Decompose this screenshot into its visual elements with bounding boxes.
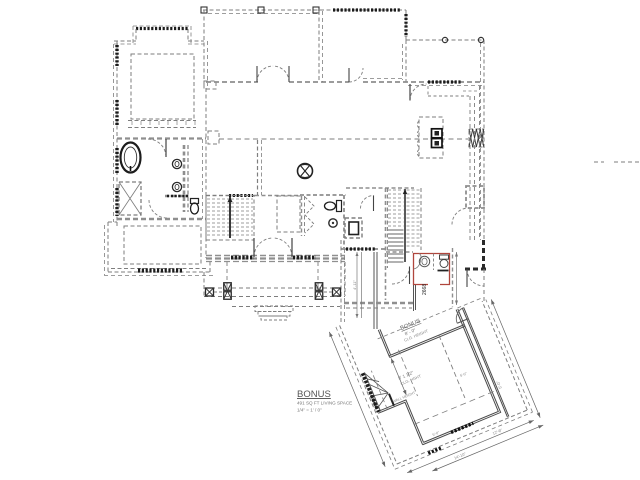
svg-text:BONUS: BONUS xyxy=(297,389,331,400)
svg-text:5'-0": 5'-0" xyxy=(459,371,468,378)
svg-text:4'-11": 4'-11" xyxy=(352,280,357,290)
svg-text:5'-0": 5'-0" xyxy=(495,380,503,390)
svg-text:14'-10": 14'-10" xyxy=(453,451,467,461)
svg-text:491 SQ FT LIVING SPACE: 491 SQ FT LIVING SPACE xyxy=(297,401,352,406)
svg-text:1/4" = 1' / 0": 1/4" = 1' / 0" xyxy=(297,408,322,413)
svg-text:2668: 2668 xyxy=(422,284,428,295)
